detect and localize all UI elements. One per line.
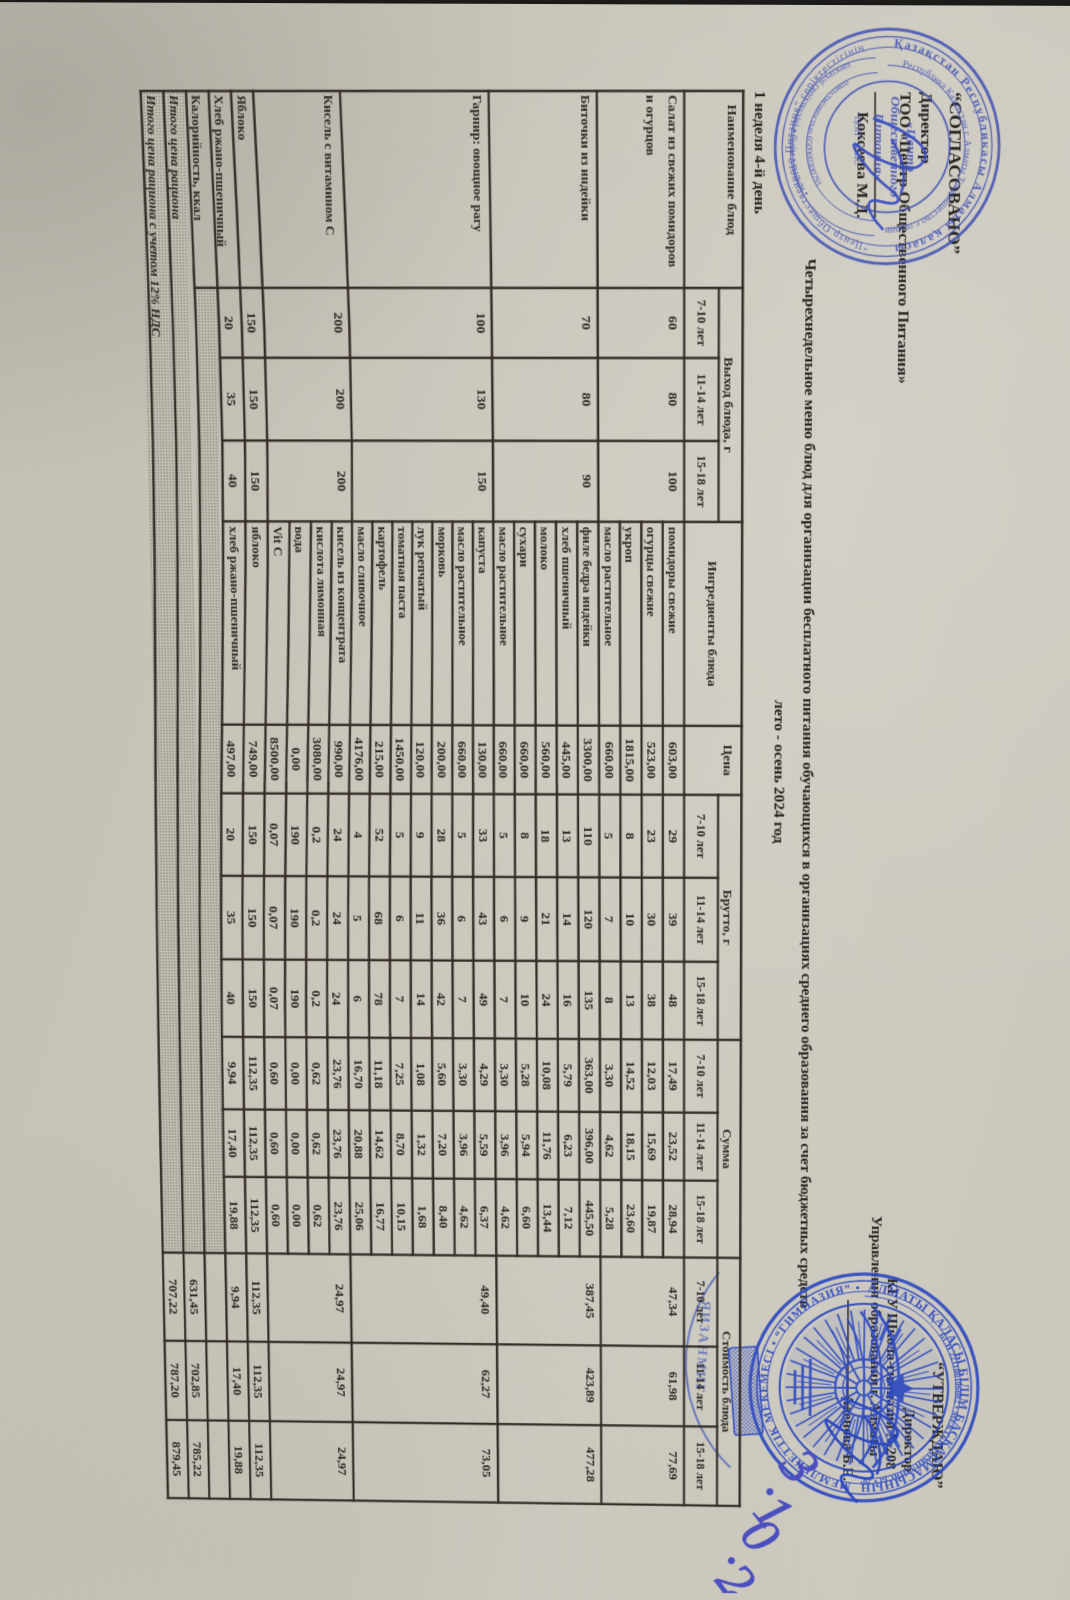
svg-text:23,60: 23,60 — [623, 1204, 638, 1233]
svg-text:7-10 лет: 7-10 лет — [694, 300, 708, 347]
svg-text:150: 150 — [245, 988, 260, 1008]
svg-text:23,52: 23,52 — [665, 1132, 680, 1162]
svg-text:13: 13 — [623, 994, 638, 1007]
svg-text:35: 35 — [224, 392, 239, 406]
svg-text:120,00: 120,00 — [413, 741, 428, 778]
svg-text:73,05: 73,05 — [479, 1449, 494, 1478]
svg-text:9: 9 — [517, 916, 532, 923]
svg-text:11,76: 11,76 — [539, 1131, 554, 1160]
svg-text:23,76: 23,76 — [329, 1059, 344, 1089]
svg-text:49: 49 — [476, 993, 491, 1006]
svg-text:8,70: 8,70 — [393, 1133, 408, 1156]
svg-text:5,94: 5,94 — [518, 1134, 533, 1157]
svg-text:3,96: 3,96 — [497, 1134, 512, 1157]
svg-text:6: 6 — [392, 915, 407, 922]
svg-text:100: 100 — [473, 312, 488, 333]
svg-text:190: 190 — [287, 908, 302, 928]
svg-text:7,20: 7,20 — [435, 1133, 450, 1156]
svg-text:77,69: 77,69 — [665, 1451, 680, 1480]
svg-text:112,35: 112,35 — [245, 1056, 260, 1091]
svg-text:масло растительное: масло растительное — [601, 527, 616, 646]
svg-text:19,88: 19,88 — [231, 1445, 246, 1474]
svg-text:130: 130 — [474, 389, 489, 410]
svg-text:14,52: 14,52 — [623, 1061, 638, 1091]
svg-text:707,22: 707,22 — [165, 1279, 180, 1314]
svg-text:61,98: 61,98 — [665, 1372, 680, 1401]
svg-text:14: 14 — [559, 913, 574, 926]
svg-text:12,03: 12,03 — [644, 1061, 659, 1091]
svg-text:лето - осень 2024 год: лето - осень 2024 год — [770, 700, 787, 843]
svg-text:6,23: 6,23 — [560, 1134, 575, 1157]
svg-text:14,62: 14,62 — [372, 1130, 387, 1159]
svg-text:Хлеб ржано-пшеничный: Хлеб ржано-пшеничный — [212, 95, 229, 247]
svg-text:39: 39 — [665, 913, 680, 926]
svg-text:18,15: 18,15 — [623, 1131, 638, 1161]
svg-text:0,2: 0,2 — [308, 910, 323, 927]
svg-text:40: 40 — [225, 474, 240, 488]
svg-text:0,00: 0,00 — [289, 1204, 304, 1227]
svg-text:30: 30 — [644, 913, 659, 926]
svg-text:52: 52 — [371, 828, 386, 841]
svg-text:112,35: 112,35 — [247, 1198, 262, 1233]
svg-text:24: 24 — [329, 911, 344, 924]
svg-text:Гарнир: овощное рагу: Гарнир: овощное рагу — [470, 95, 486, 232]
svg-text:38: 38 — [644, 994, 659, 1007]
svg-text:13,44: 13,44 — [540, 1203, 555, 1232]
svg-text:17,49: 17,49 — [665, 1061, 680, 1091]
svg-text:20: 20 — [223, 828, 238, 841]
svg-text:0,62: 0,62 — [310, 1204, 325, 1227]
svg-text:10: 10 — [517, 993, 532, 1006]
svg-text:603,00: 603,00 — [665, 742, 680, 779]
svg-text:112,35: 112,35 — [246, 1126, 261, 1161]
svg-text:3,30: 3,30 — [455, 1063, 470, 1086]
svg-text:10: 10 — [623, 913, 638, 926]
svg-text:9,94: 9,94 — [224, 1062, 239, 1085]
svg-text:702,85: 702,85 — [188, 1363, 203, 1398]
svg-text:19,87: 19,87 — [644, 1204, 659, 1233]
svg-text:190: 190 — [287, 825, 302, 845]
svg-text:660,00: 660,00 — [495, 741, 510, 778]
svg-text:150: 150 — [248, 471, 263, 492]
svg-text:7: 7 — [455, 996, 470, 1003]
svg-text:7: 7 — [392, 996, 407, 1003]
svg-text:1,08: 1,08 — [413, 1063, 428, 1086]
svg-text:785,22: 785,22 — [189, 1442, 204, 1477]
svg-text:47,34: 47,34 — [665, 1287, 680, 1316]
svg-text:40: 40 — [223, 991, 238, 1004]
svg-text:масло сливочное: масло сливочное — [355, 526, 370, 626]
svg-text:62,27: 62,27 — [478, 1370, 493, 1399]
svg-text:5: 5 — [496, 832, 511, 839]
svg-text:396,00: 396,00 — [581, 1128, 596, 1164]
svg-text:200: 200 — [330, 312, 345, 333]
svg-text:6: 6 — [496, 916, 511, 923]
svg-text:23,76: 23,76 — [331, 1201, 346, 1230]
svg-text:150: 150 — [474, 471, 489, 492]
svg-text:4,62: 4,62 — [456, 1206, 471, 1229]
svg-text:Калорийность, ккал: Калорийность, ккал — [189, 95, 206, 221]
svg-text:660,00: 660,00 — [516, 741, 531, 778]
svg-text:24,97: 24,97 — [334, 1447, 349, 1476]
svg-text:42: 42 — [434, 993, 449, 1006]
svg-text:23,76: 23,76 — [330, 1129, 345, 1158]
svg-text:Четырехнедельное меню блюд для: Четырехнедельное меню блюд для организац… — [796, 259, 818, 1309]
svg-text:4,62: 4,62 — [602, 1134, 617, 1157]
svg-text:Стоимость блюда: Стоимость блюда — [719, 1331, 734, 1433]
svg-text:1450,00: 1450,00 — [392, 738, 407, 782]
svg-text:100: 100 — [665, 471, 680, 492]
svg-text:110: 110 — [580, 826, 595, 845]
svg-text:укроп: укроп — [623, 527, 637, 563]
svg-text:445,50: 445,50 — [581, 1200, 596, 1236]
svg-text:16: 16 — [560, 993, 575, 1006]
svg-text:120: 120 — [580, 909, 595, 929]
svg-text:4176,00: 4176,00 — [351, 737, 367, 781]
svg-text:787,20: 787,20 — [167, 1363, 182, 1398]
svg-text:9: 9 — [413, 832, 428, 839]
svg-text:80: 80 — [579, 392, 594, 406]
svg-text:631,45: 631,45 — [186, 1279, 201, 1314]
svg-text:17,40: 17,40 — [229, 1367, 244, 1396]
svg-text:28,94: 28,94 — [665, 1204, 680, 1233]
svg-text:24: 24 — [329, 992, 344, 1005]
svg-text:хлеб пшеничный: хлеб пшеничный — [559, 527, 574, 630]
svg-text:112,35: 112,35 — [249, 1280, 264, 1315]
svg-text:Брутто, г: Брутто, г — [720, 890, 735, 946]
svg-text:лук репчатый: лук репчатый — [415, 527, 430, 611]
svg-text:60: 60 — [664, 316, 679, 330]
svg-text:0,07: 0,07 — [266, 823, 281, 846]
svg-text:Салат из свежих помидоров: Салат из свежих помидоров — [665, 95, 680, 267]
svg-text:4,62: 4,62 — [498, 1206, 513, 1229]
svg-text:5,60: 5,60 — [434, 1063, 449, 1086]
svg-text:80: 80 — [665, 392, 680, 406]
svg-text:523,00: 523,00 — [644, 742, 659, 779]
svg-text:Биточки из индейки: Биточки из индейки — [578, 95, 593, 221]
svg-text:0,00: 0,00 — [287, 1062, 302, 1085]
svg-text:15-18 лет: 15-18 лет — [694, 976, 708, 1027]
svg-text:7-10 лет: 7-10 лет — [694, 1281, 708, 1325]
svg-text:11-14 лет: 11-14 лет — [694, 373, 708, 426]
svg-text:7,12: 7,12 — [561, 1207, 576, 1230]
svg-text:8: 8 — [622, 833, 637, 840]
svg-text:0,60: 0,60 — [267, 1132, 282, 1155]
svg-text:70: 70 — [578, 316, 593, 330]
svg-text:200,00: 200,00 — [433, 741, 448, 778]
svg-text:25,06: 25,06 — [352, 1202, 367, 1231]
svg-text:«Центр: «Центр — [903, 121, 919, 172]
svg-text:15,69: 15,69 — [644, 1132, 659, 1162]
svg-text:23: 23 — [644, 829, 659, 842]
svg-text:11-14 лет: 11-14 лет — [694, 895, 708, 945]
svg-text:477,28: 477,28 — [582, 1447, 597, 1482]
svg-text:0,00: 0,00 — [288, 747, 303, 771]
svg-text:11-14 лет: 11-14 лет — [694, 1122, 708, 1171]
svg-text:7: 7 — [496, 996, 511, 1003]
svg-text:49,40: 49,40 — [478, 1285, 493, 1314]
svg-text:21: 21 — [538, 912, 553, 925]
svg-text:11: 11 — [412, 912, 427, 925]
svg-text:90: 90 — [579, 474, 594, 488]
svg-text:35: 35 — [223, 911, 238, 924]
svg-text:0,60: 0,60 — [266, 1062, 281, 1085]
svg-text:0,2: 0,2 — [309, 827, 324, 844]
svg-text:Итого цена рациона: Итого цена рациона — [167, 94, 184, 220]
svg-text:помидоры свежие: помидоры свежие — [666, 527, 680, 634]
svg-text:24: 24 — [330, 828, 345, 841]
svg-text:кисель из концентрата: кисель из концентрата — [334, 526, 350, 663]
svg-text:215,00: 215,00 — [372, 741, 387, 778]
svg-text:7,25: 7,25 — [392, 1063, 407, 1086]
svg-text:8: 8 — [517, 832, 532, 839]
svg-text:1 неделя 4-й день: 1 неделя 4-й день — [751, 91, 768, 214]
svg-text:картофель: картофель — [375, 527, 390, 590]
svg-text:43: 43 — [475, 912, 490, 925]
svg-text:5,59: 5,59 — [476, 1133, 491, 1156]
svg-text:7-10 лет: 7-10 лет — [694, 814, 708, 859]
svg-text:13: 13 — [559, 829, 574, 842]
svg-text:3080,00: 3080,00 — [309, 737, 325, 781]
svg-text:24,97: 24,97 — [333, 1368, 348, 1397]
svg-text:5: 5 — [350, 915, 365, 922]
svg-text:150: 150 — [244, 312, 260, 333]
svg-text:огурцы свежие: огурцы свежие — [644, 527, 658, 617]
svg-text:молоко: молоко — [538, 527, 552, 571]
svg-text:томатная паста: томатная паста — [395, 527, 410, 619]
svg-text:Цена: Цена — [720, 745, 735, 776]
svg-text:11-14 лет: 11-14 лет — [694, 1363, 708, 1412]
svg-text:200: 200 — [333, 471, 348, 492]
svg-text:33: 33 — [475, 829, 490, 842]
svg-text:масло растительное: масло растительное — [496, 527, 511, 646]
svg-text:0,00: 0,00 — [288, 1132, 303, 1155]
svg-text:8,40: 8,40 — [435, 1205, 450, 1228]
svg-text:5: 5 — [601, 833, 616, 840]
svg-text:Наименование блюд: Наименование блюд — [724, 105, 740, 235]
svg-text:кислота лимонная: кислота лимонная — [314, 526, 330, 637]
svg-text:990,00: 990,00 — [330, 741, 345, 778]
svg-text:135: 135 — [581, 990, 596, 1010]
svg-text:15-18 лет: 15-18 лет — [694, 455, 708, 508]
svg-text:хлеб ржано-пшеничный: хлеб ржано-пшеничный — [226, 526, 243, 670]
svg-text:7: 7 — [601, 916, 616, 923]
svg-text:190: 190 — [287, 989, 302, 1009]
svg-text:1815,00: 1815,00 — [622, 738, 637, 782]
svg-text:Vit C: Vit C — [271, 526, 286, 556]
svg-text:363,00: 363,00 — [581, 1057, 596, 1093]
svg-text:387,45: 387,45 — [582, 1283, 597, 1319]
svg-text:сухари: сухари — [517, 527, 531, 568]
svg-text:112,35: 112,35 — [251, 1443, 266, 1477]
svg-text:7-10 лет: 7-10 лет — [694, 1054, 708, 1098]
svg-text:6: 6 — [454, 915, 469, 922]
svg-text:8: 8 — [602, 997, 617, 1004]
svg-text:200: 200 — [332, 389, 347, 410]
svg-text:4,29: 4,29 — [476, 1063, 491, 1086]
svg-text:749,00: 749,00 — [245, 740, 261, 777]
svg-text:24,97: 24,97 — [332, 1284, 347, 1313]
svg-text:5,28: 5,28 — [518, 1064, 533, 1087]
svg-text:18: 18 — [538, 829, 553, 842]
svg-text:15-18 лет: 15-18 лет — [693, 1442, 707, 1491]
svg-text:1,32: 1,32 — [414, 1133, 429, 1156]
svg-text:15-18 лет: 15-18 лет — [694, 1195, 708, 1245]
svg-text:16,77: 16,77 — [373, 1202, 388, 1231]
svg-text:20: 20 — [221, 316, 236, 330]
svg-text:112,35: 112,35 — [250, 1364, 265, 1399]
svg-text:10,08: 10,08 — [539, 1060, 554, 1090]
svg-text:6,37: 6,37 — [477, 1206, 492, 1229]
svg-text:6,60: 6,60 — [519, 1206, 534, 1229]
svg-text:5,28: 5,28 — [602, 1207, 617, 1230]
svg-text:филе бедра индейки: филе бедра индейки — [580, 527, 595, 647]
svg-text:Сумма: Сумма — [720, 1129, 735, 1169]
svg-text:0,07: 0,07 — [266, 987, 281, 1010]
svg-text:Яблоко: Яблоко — [234, 95, 249, 141]
svg-text:11,18: 11,18 — [371, 1060, 386, 1089]
svg-text:3,96: 3,96 — [455, 1133, 470, 1156]
svg-text:9,94: 9,94 — [228, 1286, 243, 1309]
svg-text:150: 150 — [246, 389, 261, 410]
svg-text:вода: вода — [293, 526, 308, 553]
svg-text:Ингредиенты блюда: Ингредиенты блюда — [704, 561, 719, 686]
svg-text:130,00: 130,00 — [475, 741, 490, 778]
svg-text:0,60: 0,60 — [268, 1204, 283, 1227]
svg-text:24: 24 — [539, 993, 554, 1006]
svg-text:150: 150 — [245, 825, 260, 845]
svg-text:660,00: 660,00 — [454, 741, 469, 778]
svg-text:0,07: 0,07 — [266, 906, 281, 929]
svg-text:17,40: 17,40 — [225, 1128, 240, 1157]
svg-text:капуста: капуста — [475, 527, 490, 574]
svg-text:4: 4 — [350, 832, 365, 839]
svg-text:14: 14 — [413, 993, 428, 1006]
svg-text:“ЦОП” ЖШС: “ЦОП” ЖШС — [853, 112, 863, 165]
svg-text:3300,00: 3300,00 — [580, 738, 595, 782]
svg-text:423,89: 423,89 — [582, 1368, 597, 1403]
svg-text:5: 5 — [454, 832, 469, 839]
svg-text:497,00: 497,00 — [223, 740, 239, 777]
svg-text:29: 29 — [665, 830, 680, 843]
svg-text:Кисель с витамином С: Кисель с витамином С — [321, 95, 337, 236]
svg-text:и огурцов: и огурцов — [644, 95, 659, 156]
svg-text:6: 6 — [350, 995, 365, 1002]
svg-text:78: 78 — [371, 992, 386, 1005]
svg-text:36: 36 — [433, 912, 448, 925]
svg-text:879,45: 879,45 — [169, 1442, 184, 1477]
svg-text:яблоко: яблоко — [249, 526, 264, 568]
svg-text:5,79: 5,79 — [560, 1064, 575, 1087]
svg-text:Выход блюда, г: Выход блюда, г — [721, 357, 736, 453]
svg-text:8500,00: 8500,00 — [267, 737, 283, 781]
svg-text:16,70: 16,70 — [350, 1059, 365, 1089]
svg-text:3,30: 3,30 — [602, 1064, 617, 1087]
svg-text:445,00: 445,00 — [559, 741, 574, 778]
svg-text:1,68: 1,68 — [414, 1205, 429, 1228]
svg-text:660,00: 660,00 — [601, 742, 616, 779]
svg-text:48: 48 — [665, 994, 680, 1007]
svg-text:20,88: 20,88 — [351, 1129, 366, 1158]
svg-text:0,62: 0,62 — [309, 1132, 324, 1155]
svg-text:28: 28 — [433, 829, 448, 842]
svg-text:0,2: 0,2 — [308, 990, 323, 1007]
svg-text:морковь: морковь — [435, 527, 450, 578]
svg-text:10,15: 10,15 — [393, 1202, 408, 1231]
svg-text:5: 5 — [392, 832, 407, 839]
svg-text:0,62: 0,62 — [308, 1062, 323, 1085]
svg-text:150: 150 — [244, 908, 259, 928]
svg-text:560,00: 560,00 — [538, 741, 553, 778]
svg-text:3,30: 3,30 — [497, 1063, 512, 1086]
svg-text:19,88: 19,88 — [226, 1200, 241, 1229]
svg-text:масло растительное: масло растительное — [455, 527, 470, 646]
svg-text:68: 68 — [371, 912, 386, 925]
